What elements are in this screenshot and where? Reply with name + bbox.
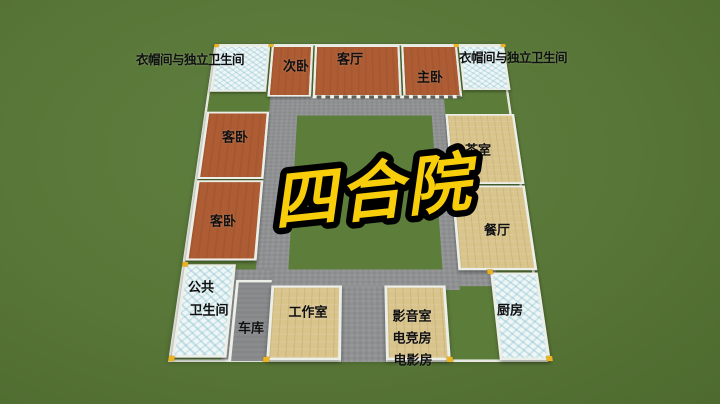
label-movie-room: 电影房: [393, 355, 432, 368]
label-studio: 工作室: [288, 307, 327, 320]
label-secondary-bedroom: 次卧: [283, 61, 309, 74]
label-master-bedroom: 主卧: [417, 72, 443, 85]
label-public-bath-1: 公共: [188, 282, 214, 295]
label-esports-room: 电竞房: [392, 333, 431, 346]
label-public-bath-2: 卫生间: [189, 305, 228, 318]
label-living-room: 客厅: [337, 54, 363, 67]
label-media-room: 影音室: [392, 311, 431, 324]
label-kitchen: 厨房: [497, 305, 523, 318]
label-wardrobe-left: 衣帽间与独立卫生间: [136, 54, 244, 67]
minecraft-screenshot: 衣帽间与独立卫生间 衣帽间与独立卫生间 次卧 客厅 主卧 客卧 客卧 茶室 餐厅…: [0, 0, 720, 404]
main-title-graphic: 四合院: [238, 132, 508, 257]
label-guest-bedroom-lower: 客卧: [210, 216, 236, 229]
main-title-text: 四合院: [269, 145, 484, 240]
label-garage: 车库: [238, 323, 264, 336]
label-wardrobe-right: 衣帽间与独立卫生间: [459, 52, 567, 65]
